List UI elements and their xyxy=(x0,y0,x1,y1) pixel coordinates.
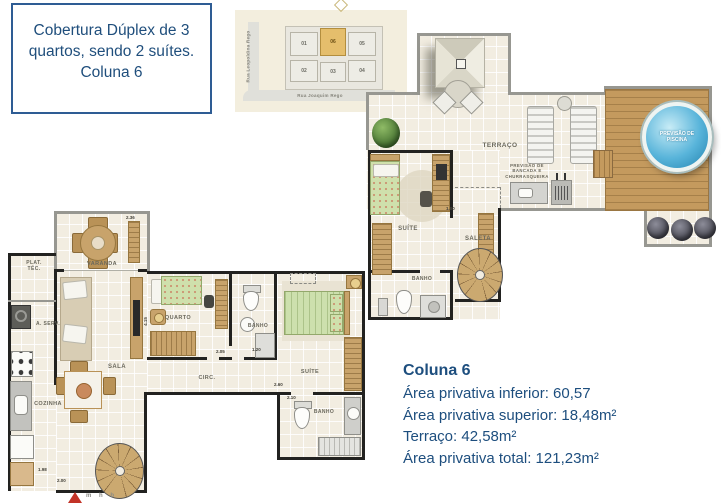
room-label-suite-lower: SUÍTE xyxy=(284,369,336,376)
shower xyxy=(255,333,275,358)
bed-pillow-floral xyxy=(330,294,343,312)
sliding-door xyxy=(64,270,138,271)
plant-icon xyxy=(671,219,693,241)
unit-06-label: 06 xyxy=(330,39,336,45)
parasol-pole xyxy=(456,59,466,69)
info-box: Cobertura Dúplex de 3 quartos, sendo 2 s… xyxy=(11,3,212,114)
unit-02-label: 02 xyxy=(301,68,307,74)
wall xyxy=(54,211,150,214)
desk-chair xyxy=(204,295,214,308)
table-plate xyxy=(91,236,105,250)
deck-steps xyxy=(593,150,613,178)
counter-unit xyxy=(10,462,34,486)
dimension: 1.98 xyxy=(38,467,47,472)
room-label-sala: SALA xyxy=(92,364,142,372)
unit-01-label: 01 xyxy=(301,41,307,47)
door-swing-dashed xyxy=(290,273,316,284)
wall xyxy=(147,271,365,274)
wall xyxy=(147,392,291,395)
unit-01: 01 xyxy=(290,32,318,56)
wall xyxy=(366,92,420,95)
wardrobe xyxy=(344,337,362,391)
wall xyxy=(54,211,57,271)
wall xyxy=(8,300,56,302)
pool-label: PREVISÃO DE PISCINA xyxy=(654,131,700,143)
monitor xyxy=(436,164,447,180)
room-label-bancada: PREVISÃO DE BANCADA E CHURRASQUEIRA xyxy=(498,163,556,179)
wall xyxy=(147,357,207,360)
unit-06: 06 xyxy=(320,28,346,56)
bed-pillow xyxy=(373,164,399,177)
builder-logo-icon xyxy=(68,492,82,503)
room-label-saleta: SALETA xyxy=(450,236,506,244)
room-label-quarto: QUARTO xyxy=(148,315,208,322)
wall xyxy=(366,92,369,150)
void-dashed-line xyxy=(455,187,500,188)
bed-headboard xyxy=(370,154,400,161)
wall xyxy=(362,271,365,460)
room-label-banho-upper: BANHO xyxy=(402,276,442,282)
dimension: 4.15 xyxy=(143,317,148,326)
area-line-inferior: Área privativa inferior: 60,57 xyxy=(403,383,708,405)
wall xyxy=(508,92,607,95)
room-label-a-serv: A. SERV. xyxy=(26,321,70,327)
pool: PREVISÃO DE PISCINA xyxy=(642,102,712,172)
wall xyxy=(450,270,453,320)
room-label-cozinha: COZINHA xyxy=(22,401,74,408)
bath-sink xyxy=(347,407,360,420)
wall xyxy=(144,392,147,493)
grill-prong xyxy=(564,173,566,180)
dimension: 2.10 xyxy=(287,395,296,400)
stair-post xyxy=(115,466,125,476)
shower xyxy=(318,437,361,456)
dimension: 2.05 xyxy=(216,349,225,354)
grill-prong xyxy=(556,173,558,180)
bed-single xyxy=(161,276,202,305)
wall xyxy=(368,150,453,153)
lounge-chair xyxy=(527,106,554,164)
bed-headboard xyxy=(344,291,350,335)
wall xyxy=(229,271,232,346)
brochure-page: Cobertura Dúplex de 3 quartos, sendo 2 s… xyxy=(0,0,721,504)
wall xyxy=(508,33,511,95)
plant-icon xyxy=(372,118,400,148)
area-summary: Coluna 6 Área privativa inferior: 60,57 … xyxy=(403,362,708,469)
plant-icon xyxy=(647,217,669,239)
desk-chair xyxy=(420,191,432,207)
wardrobe xyxy=(150,331,196,356)
desk xyxy=(432,154,450,212)
room-label-plat-tec: PLAT. TÉC. xyxy=(14,260,54,273)
dimension: 1.20 xyxy=(252,347,261,352)
room-label-circ: CIRC. xyxy=(182,375,232,382)
dimension: 2.60 xyxy=(274,382,283,387)
counter-unit xyxy=(10,435,34,459)
info-box-text: Cobertura Dúplex de 3 quartos, sendo 2 s… xyxy=(17,21,207,84)
area-summary-title: Coluna 6 xyxy=(403,362,708,380)
desk xyxy=(215,279,228,329)
shower-drain xyxy=(428,301,440,313)
wall xyxy=(147,211,150,271)
area-line-total: Área privativa total: 121,23m² xyxy=(403,448,708,470)
side-table xyxy=(557,96,572,111)
wall xyxy=(219,357,232,360)
wall xyxy=(138,269,147,272)
street-label-bottom: Rua Joaquim Rego xyxy=(280,93,360,98)
wall xyxy=(313,392,365,395)
bed-pillow-floral xyxy=(330,314,343,332)
wall xyxy=(417,33,511,36)
plant-icon xyxy=(694,217,716,239)
wall xyxy=(644,244,712,247)
upper-floor-plan: PREVISÃO DE PISCINA TERRAÇO xyxy=(360,8,716,340)
sink-basin xyxy=(518,188,533,198)
sofa-pillow xyxy=(62,280,88,300)
table-centerpiece xyxy=(76,383,92,399)
dimension: 2.36 xyxy=(126,215,135,220)
bath-sink xyxy=(378,298,388,316)
chair xyxy=(103,377,116,395)
unit-03: 03 xyxy=(320,62,346,82)
street-label-left: Rua Leopoldina Rego xyxy=(246,27,251,87)
wall xyxy=(56,269,64,272)
wall xyxy=(417,33,420,95)
room-label-suite-upper: SUÍTE xyxy=(378,226,438,234)
lower-floor-plan: VARANDA PLAT. TÉC. A. SERV. COZINHA SALA… xyxy=(0,205,375,504)
lamp xyxy=(350,278,361,289)
wall xyxy=(8,253,56,256)
grill-grate xyxy=(555,186,568,200)
room-label-banho2: BANHO xyxy=(300,409,348,415)
dimension: 2.00 xyxy=(57,478,66,483)
area-line-superior: Área privativa superior: 18,48m² xyxy=(403,405,708,427)
sideboard xyxy=(128,221,140,263)
area-line-terraco: Terraço: 42,58m² xyxy=(403,426,708,448)
room-label-terraco: TERRAÇO xyxy=(460,142,540,150)
void-dashed-line xyxy=(500,187,501,208)
chair xyxy=(70,410,88,423)
room-label-banho1: BANHO xyxy=(236,323,280,329)
room-label-varanda: VARANDA xyxy=(72,261,132,268)
unit-03-label: 03 xyxy=(330,69,336,75)
unit-02: 02 xyxy=(290,60,318,82)
stair-post xyxy=(475,270,485,280)
builder-logo-text: m h b xyxy=(86,493,117,499)
dimension: 1.80 xyxy=(446,206,455,211)
tv xyxy=(133,300,140,336)
wall xyxy=(277,457,365,460)
stove xyxy=(11,351,33,377)
wall xyxy=(277,395,280,460)
